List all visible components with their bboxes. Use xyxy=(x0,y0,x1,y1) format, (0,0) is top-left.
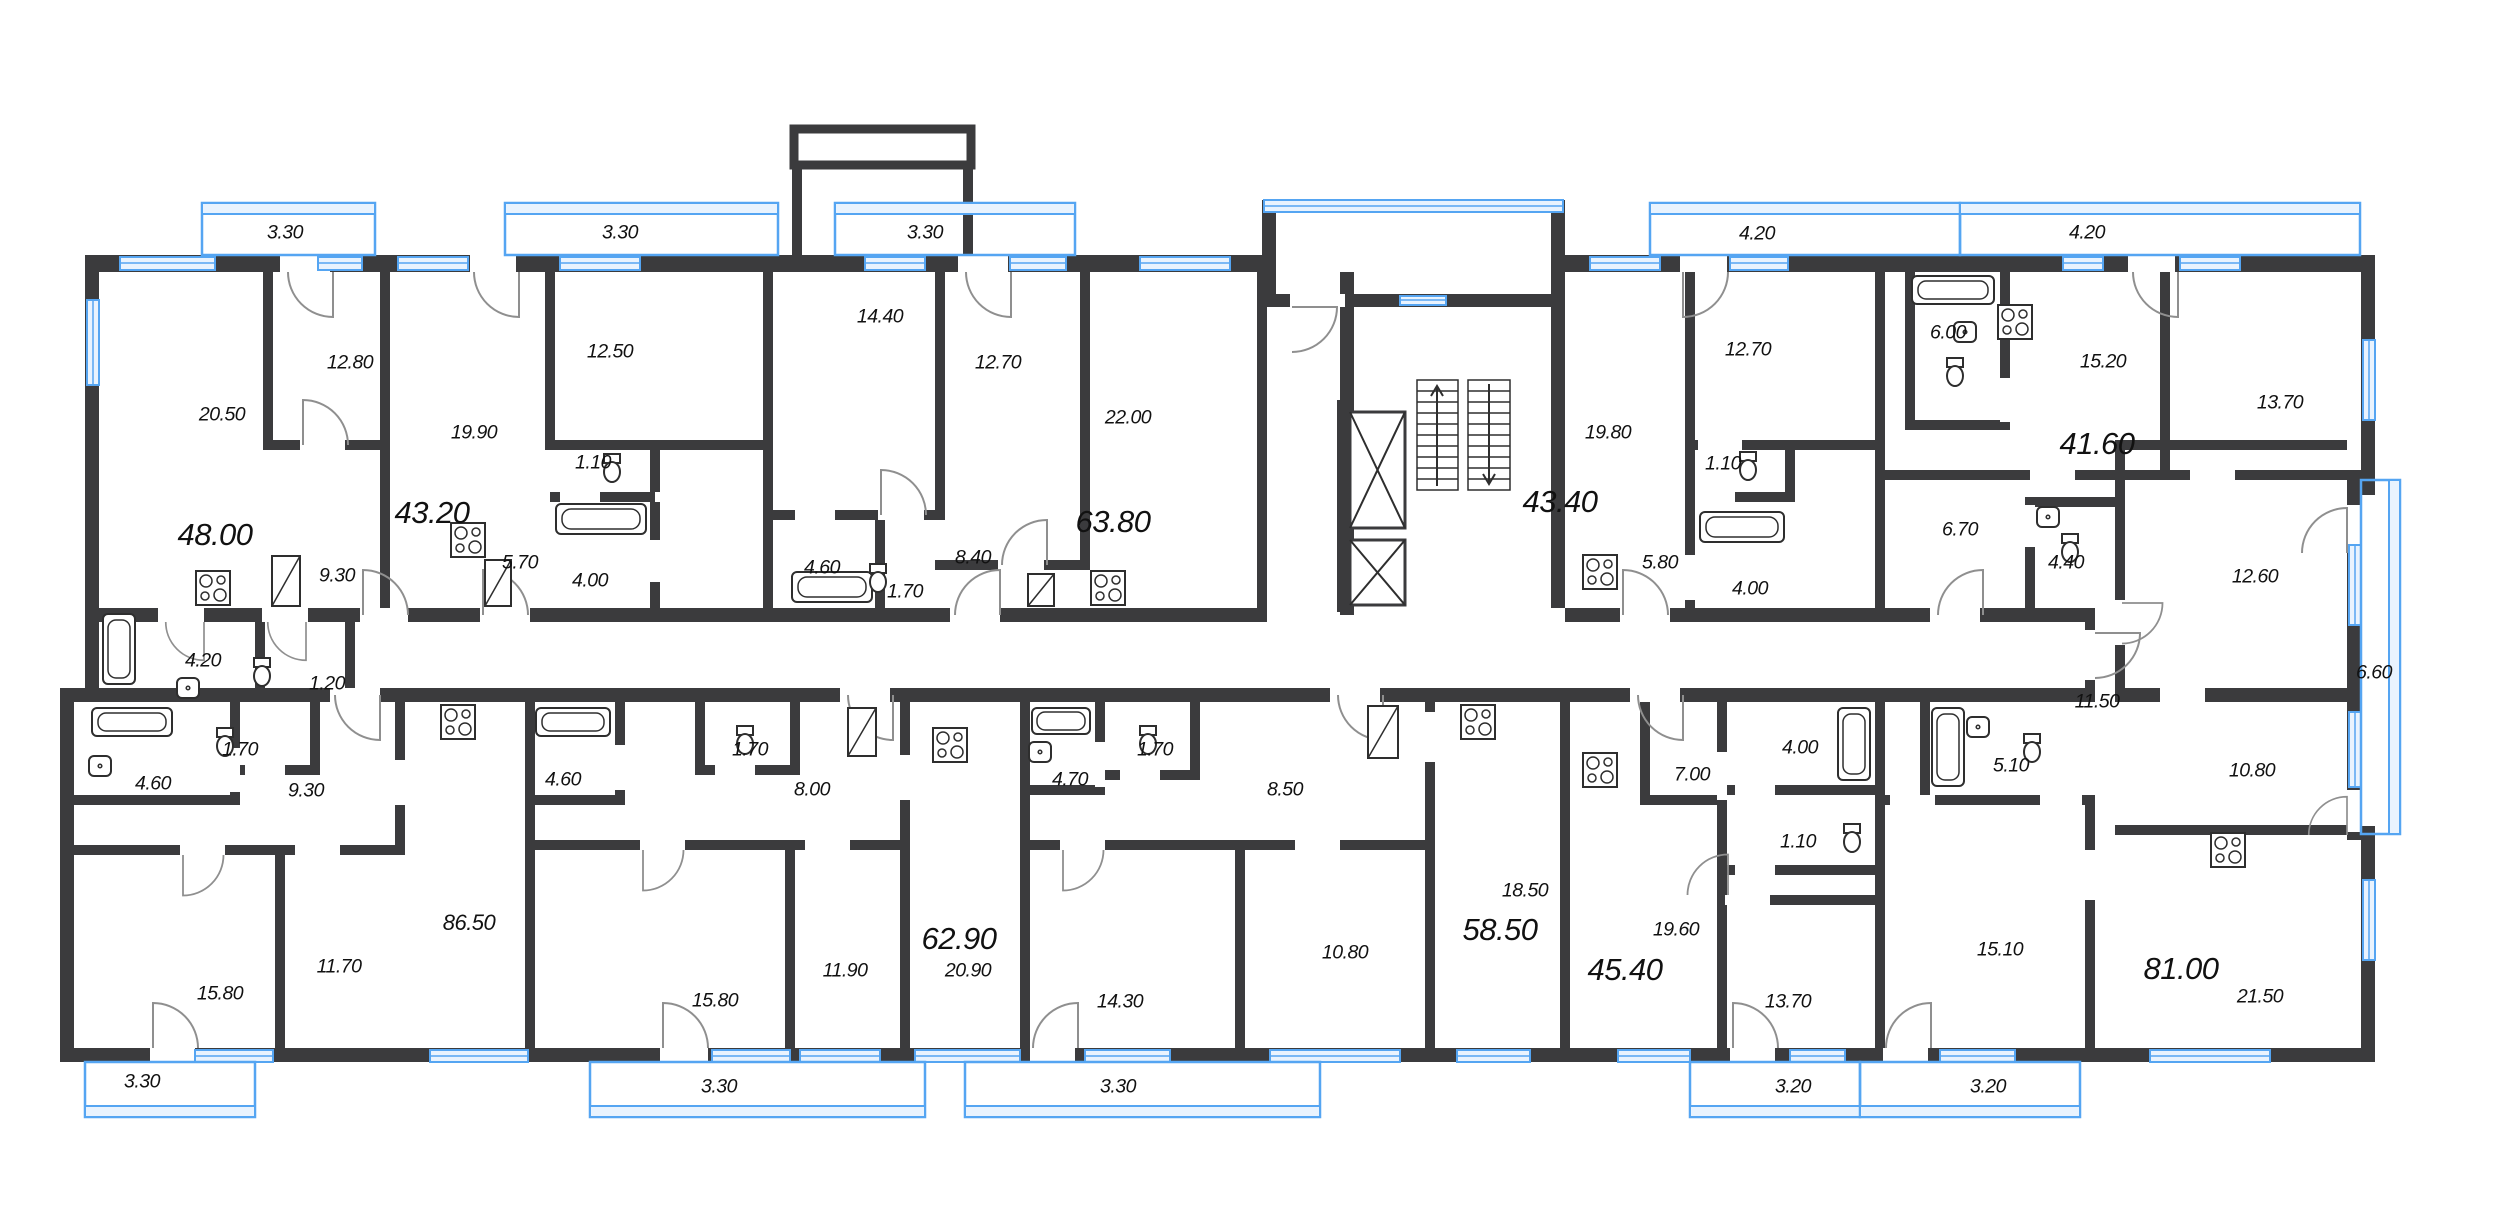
apartment-total-area-label: 43.40 xyxy=(1522,484,1597,520)
floor-plan-canvas: 3.303.303.304.204.2020.5012.8048.009.304… xyxy=(0,0,2500,1212)
room-area-label: 4.20 xyxy=(185,650,221,673)
room-area-label: 21.50 xyxy=(2237,986,2283,1009)
apartment-total-area-label: 48.00 xyxy=(177,517,252,553)
room-area-label: 15.80 xyxy=(692,990,738,1013)
room-area-label: 5.10 xyxy=(1993,755,2029,778)
area-labels-layer: 3.303.303.304.204.2020.5012.8048.009.304… xyxy=(0,0,2500,1212)
room-area-label: 3.20 xyxy=(1775,1076,1811,1099)
room-area-label: 11.90 xyxy=(823,960,868,983)
room-area-label: 4.20 xyxy=(1739,223,1775,246)
room-area-label: 6.00 xyxy=(1930,322,1966,345)
room-area-label: 1.70 xyxy=(732,739,768,762)
room-area-label: 14.30 xyxy=(1097,991,1143,1014)
room-area-label: 4.60 xyxy=(135,773,171,796)
room-area-label: 12.70 xyxy=(1725,339,1771,362)
room-area-label: 5.80 xyxy=(1642,552,1678,575)
room-area-label: 1.70 xyxy=(1137,739,1173,762)
room-area-label: 3.30 xyxy=(907,222,943,245)
room-area-label: 12.70 xyxy=(975,352,1021,375)
room-area-label: 20.50 xyxy=(199,404,245,427)
room-area-label: 12.60 xyxy=(2232,566,2278,589)
room-area-label: 15.80 xyxy=(197,983,243,1006)
room-area-label: 12.50 xyxy=(587,341,633,364)
apartment-total-area-label: 41.60 xyxy=(2059,426,2134,462)
room-area-label: 11.50 xyxy=(2075,691,2120,714)
room-area-label: 1.10 xyxy=(1780,831,1816,854)
room-area-label: 18.50 xyxy=(1502,880,1548,903)
room-area-label: 3.30 xyxy=(701,1076,737,1099)
room-area-label: 4.00 xyxy=(1732,578,1768,601)
room-area-label: 9.30 xyxy=(319,565,355,588)
room-area-label: 3.30 xyxy=(124,1071,160,1094)
room-area-label: 3.20 xyxy=(1970,1076,2006,1099)
room-area-label: 13.70 xyxy=(1765,991,1811,1014)
apartment-total-area-label: 81.00 xyxy=(2143,951,2218,987)
room-area-label: 3.30 xyxy=(1100,1076,1136,1099)
room-area-label: 3.30 xyxy=(602,222,638,245)
room-area-label: 1.70 xyxy=(222,739,258,762)
room-area-label: 14.40 xyxy=(857,306,903,329)
room-area-label: 7.00 xyxy=(1674,764,1710,787)
room-area-label: 8.40 xyxy=(955,547,991,570)
room-area-label: 8.00 xyxy=(794,779,830,802)
room-area-label: 11.70 xyxy=(317,956,362,979)
room-area-label: 15.20 xyxy=(2080,351,2126,374)
apartment-total-area-label: 58.50 xyxy=(1462,912,1537,948)
room-area-label: 4.20 xyxy=(2069,222,2105,245)
room-area-label: 13.70 xyxy=(2257,392,2303,415)
room-area-label: 1.70 xyxy=(887,581,923,604)
room-area-label: 22.00 xyxy=(1105,407,1151,430)
room-area-label: 19.80 xyxy=(1585,422,1631,445)
room-area-label: 1.10 xyxy=(1705,453,1741,476)
room-area-label: 10.80 xyxy=(1322,942,1368,965)
room-area-label: 19.90 xyxy=(451,422,497,445)
room-area-label: 4.60 xyxy=(804,557,840,580)
room-area-label: 6.70 xyxy=(1942,519,1978,542)
apartment-total-area-label: 43.20 xyxy=(394,495,469,531)
room-area-label: 4.60 xyxy=(545,769,581,792)
room-area-label: 3.30 xyxy=(267,222,303,245)
room-area-label: 9.30 xyxy=(288,780,324,803)
room-area-label: 1.20 xyxy=(309,673,345,696)
apartment-total-area-label: 45.40 xyxy=(1587,952,1662,988)
room-area-label: 15.10 xyxy=(1977,939,2023,962)
room-area-label: 4.00 xyxy=(1782,737,1818,760)
room-area-label: 4.00 xyxy=(572,570,608,593)
room-area-label: 19.60 xyxy=(1653,919,1699,942)
room-area-label: 20.90 xyxy=(945,960,991,983)
room-area-label: 12.80 xyxy=(327,352,373,375)
apartment-total-area-label: 62.90 xyxy=(921,921,996,957)
room-area-label: 4.40 xyxy=(2048,552,2084,575)
apartment-total-area-label: 63.80 xyxy=(1075,504,1150,540)
room-area-label: 8.50 xyxy=(1267,779,1303,802)
room-area-label: 86.50 xyxy=(443,910,496,936)
room-area-label: 10.80 xyxy=(2229,760,2275,783)
room-area-label: 4.70 xyxy=(1052,769,1088,792)
room-area-label: 1.10 xyxy=(575,452,611,475)
room-area-label: 6.60 xyxy=(2356,662,2392,685)
room-area-label: 5.70 xyxy=(502,552,538,575)
